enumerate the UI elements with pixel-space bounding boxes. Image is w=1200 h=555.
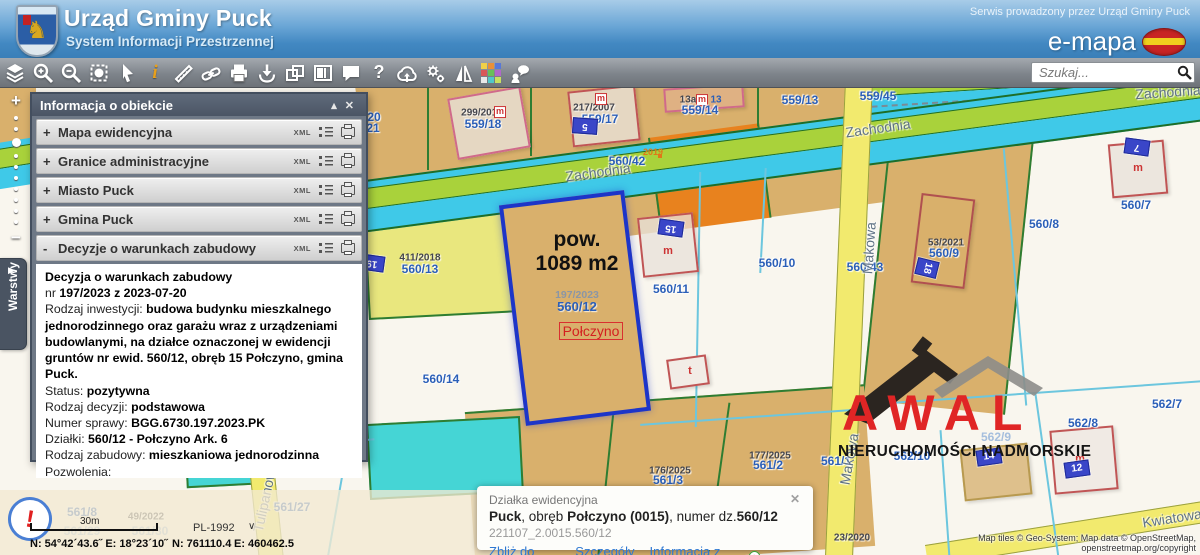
- layout-tool-button[interactable]: [310, 60, 336, 86]
- print-icon[interactable]: [341, 243, 355, 253]
- list-icon[interactable]: [319, 214, 333, 224]
- service-note: Serwis prowadzony przez Urząd Gminy Puck: [970, 6, 1190, 18]
- popup-parcel-id: 221107_2.0015.560/12: [489, 526, 801, 540]
- parcel-line: [940, 430, 951, 555]
- zoom-level-dot: [14, 176, 18, 180]
- parcel-popup: ✕ Działka ewidencyjna Puck, obręb Połczy…: [477, 486, 813, 550]
- popup-link-details[interactable]: Szczegóły (I): [575, 544, 634, 555]
- building-outline: [447, 88, 531, 160]
- page-subtitle: System Informacji Przestrzennej: [66, 34, 274, 49]
- list-icon[interactable]: [319, 185, 333, 195]
- zoom-level-dot: [14, 127, 18, 131]
- copy-view-button[interactable]: [282, 60, 308, 86]
- metric-coordinate-n: N: 761110.4: [172, 538, 231, 550]
- xml-export-button[interactable]: XML: [294, 215, 311, 224]
- building-outline: [1108, 140, 1168, 199]
- list-icon[interactable]: [319, 243, 333, 253]
- zoom-level-dot: [14, 220, 18, 224]
- parcel-label: 560/14: [423, 372, 460, 386]
- zoom-level-dot: [14, 198, 18, 202]
- comment-icon: [340, 62, 362, 84]
- feedback-icon: [508, 62, 530, 84]
- theme-palette-button[interactable]: [478, 60, 504, 86]
- zoom-level-dot: [14, 154, 18, 158]
- popup-close-icon[interactable]: ✕: [784, 491, 806, 507]
- emapa-brand: e-mapa: [1048, 26, 1186, 57]
- select-area-icon: [88, 62, 110, 84]
- popup-type-label: Działka ewidencyjna: [489, 493, 801, 507]
- decision-detail-line: Decyzja o warunkach zabudowy: [45, 269, 353, 285]
- chevron-down-icon[interactable]: ∨: [248, 521, 255, 532]
- zoom-out-icon: [60, 62, 82, 84]
- panel-close-button[interactable]: ✕: [341, 99, 358, 112]
- list-icon[interactable]: [319, 127, 333, 137]
- parcel-label: 562/9: [981, 430, 1011, 444]
- main-toolbar: i ?: [0, 58, 1200, 88]
- upload-cloud-button[interactable]: [394, 60, 420, 86]
- parcel-label: 562/10: [894, 449, 931, 463]
- popup-link-plan-info[interactable]: Informacja z planu: [650, 544, 733, 555]
- decision-detail-line: Rodzaj zabudowy: mieszkaniowa jednorodzi…: [45, 447, 353, 463]
- parcel-label: 562/7: [1152, 397, 1182, 411]
- print-icon[interactable]: [341, 156, 355, 166]
- page-title: Urząd Gminy Puck: [64, 5, 272, 32]
- building-outline: [637, 212, 699, 278]
- geo-system-logo: [1142, 28, 1186, 56]
- xml-export-button[interactable]: XML: [294, 128, 311, 137]
- zoom-level-dot: [14, 209, 18, 213]
- decision-detail-line: Działki: 560/12 - Połczyno Ark. 6: [45, 431, 353, 447]
- settings-button[interactable]: [422, 60, 448, 86]
- decision-detail-line: Rodzaj decyzji: podstawowa: [45, 399, 353, 415]
- select-area-button[interactable]: [86, 60, 112, 86]
- xml-export-button[interactable]: XML: [294, 157, 311, 166]
- decision-marker: [658, 154, 662, 158]
- building-outline: [911, 193, 976, 289]
- parcel-label: 560/11: [653, 282, 689, 296]
- panel-section-row[interactable]: +Mapa ewidencyjnaXML: [36, 119, 362, 145]
- search-input[interactable]: [1031, 62, 1195, 83]
- panel-section-row[interactable]: +Granice administracyjneXML: [36, 148, 362, 174]
- scale-bar: [156, 523, 158, 531]
- building-outline: [959, 443, 1032, 502]
- help-icon: ?: [374, 62, 385, 83]
- parcel-boundary: [757, 88, 759, 126]
- app-window: pow.1089 m2 197/2023 560/12 Połczyno 559…: [0, 0, 1200, 555]
- plus-circle-icon[interactable]: +: [748, 551, 761, 555]
- layers-panel-tab[interactable]: ▶ Warstwy: [0, 258, 27, 350]
- highlight-annotation: pow.1089 m2 197/2023 560/12 Połczyno: [518, 228, 636, 341]
- copy-icon: [284, 62, 306, 84]
- compare-icon: [452, 62, 474, 84]
- info-tool-button[interactable]: i: [142, 60, 168, 86]
- zoom-slider-handle[interactable]: [12, 138, 21, 147]
- object-info-panel: Informacja o obiekcie ▴ ✕ +Mapa ewidency…: [30, 92, 368, 462]
- puck-coat-of-arms: ♞: [16, 5, 58, 57]
- zoom-level-dot: [14, 116, 18, 120]
- popup-link-zoom-to-object[interactable]: Zbliż do obiektu: [489, 544, 560, 555]
- panel-collapse-button[interactable]: ▴: [327, 99, 341, 112]
- building-outline: [666, 354, 710, 389]
- print-icon: [228, 62, 250, 84]
- print-icon[interactable]: [341, 127, 355, 137]
- decision-detail-line: Pozwolenia:: [45, 464, 353, 478]
- layers-tool-button[interactable]: [2, 60, 28, 86]
- decision-detail-line: nr 197/2023 z 2023-07-20: [45, 285, 353, 301]
- palette-icon: [481, 63, 501, 83]
- popup-title: Puck, obręb Połczyno (0015), numer dz.56…: [489, 509, 801, 524]
- zoom-level-dot: [14, 165, 18, 169]
- measure-icon: [172, 62, 194, 84]
- building-outline: [567, 88, 640, 147]
- measure-tool-button[interactable]: [170, 60, 196, 86]
- decision-details: Decyzja o warunkach zabudowynr 197/2023 …: [36, 264, 362, 478]
- download-tool-button[interactable]: [254, 60, 280, 86]
- parcel-label: 560/8: [1029, 217, 1059, 231]
- comment-tool-button[interactable]: [338, 60, 364, 86]
- crs-selector[interactable]: PL-1992: [193, 522, 235, 534]
- download-icon: [256, 62, 278, 84]
- decision-detail-line: Numer sprawy: BGG.6730.197.2023.PK: [45, 415, 353, 431]
- metric-coordinate-e: E: 460462.5: [234, 538, 294, 550]
- parcel-label: 560/10: [759, 256, 796, 270]
- map-attribution-link: openstreetmap.org/copyright: [1081, 543, 1196, 553]
- crest-lion-icon: ♞: [26, 16, 48, 45]
- xml-export-button[interactable]: XML: [294, 186, 311, 195]
- info-icon: i: [152, 62, 157, 84]
- panel-section-row[interactable]: -Decyzje o warunkach zabudowyXML: [36, 235, 362, 261]
- search-box: [1031, 62, 1195, 83]
- emapa-logo-text: e-mapa: [1048, 26, 1136, 57]
- print-tool-button[interactable]: [226, 60, 252, 86]
- pointer-icon: [116, 62, 138, 84]
- layout-icon: [312, 62, 334, 84]
- decision-detail-line: Rodzaj inwestycji: budowa budynku mieszk…: [45, 301, 353, 382]
- panel-header[interactable]: Informacja o obiekcie ▴ ✕: [32, 94, 366, 116]
- gear-icon: [424, 62, 446, 84]
- panel-sections: +Mapa ewidencyjnaXML+Granice administrac…: [32, 119, 366, 261]
- help-button[interactable]: ?: [366, 60, 392, 86]
- building-outline: [1049, 425, 1118, 494]
- link-icon: [200, 62, 222, 84]
- zoom-slider-plus[interactable]: +: [6, 92, 26, 109]
- geo-coordinates: N: 54°42´43.6˝ E: 18°23´10˝: [30, 538, 168, 550]
- search-icon[interactable]: [1177, 65, 1192, 80]
- zoom-in-button[interactable]: [30, 60, 56, 86]
- panel-title: Informacja o obiekcie: [40, 98, 327, 113]
- compare-tool-button[interactable]: [450, 60, 476, 86]
- link-tool-button[interactable]: [198, 60, 224, 86]
- zoom-level-dot: [14, 187, 18, 191]
- zoom-out-button[interactable]: [58, 60, 84, 86]
- zoom-slider[interactable]: + −: [6, 92, 26, 246]
- app-header: ♞ Urząd Gminy Puck System Informacji Prz…: [0, 0, 1200, 58]
- layers-icon: [4, 62, 26, 84]
- scale-label: 30m: [80, 516, 99, 527]
- locality-label: Połczyno: [559, 322, 624, 340]
- map-attribution: Map tiles © Geo-System; Map data © OpenS…: [978, 533, 1196, 543]
- list-icon[interactable]: [319, 156, 333, 166]
- xml-export-button[interactable]: XML: [294, 244, 311, 253]
- zoom-slider-minus[interactable]: −: [6, 229, 26, 246]
- upload-cloud-icon: [396, 62, 418, 84]
- parcel-boundary: [427, 88, 429, 170]
- parcel-label: 560/7: [1121, 198, 1151, 212]
- pointer-tool-button[interactable]: [114, 60, 140, 86]
- decision-detail-line: Status: pozytywna: [45, 383, 353, 399]
- layers-tab-label: Warstwy: [6, 262, 20, 311]
- print-icon[interactable]: [341, 214, 355, 224]
- panel-section-row[interactable]: +Miasto PuckXML: [36, 177, 362, 203]
- feedback-button[interactable]: [506, 60, 532, 86]
- zoom-in-icon: [32, 62, 54, 84]
- panel-section-row[interactable]: +Gmina PuckXML: [36, 206, 362, 232]
- popup-link-more[interactable]: Inne: [776, 552, 801, 555]
- print-icon[interactable]: [341, 185, 355, 195]
- scale-bar: [30, 529, 158, 531]
